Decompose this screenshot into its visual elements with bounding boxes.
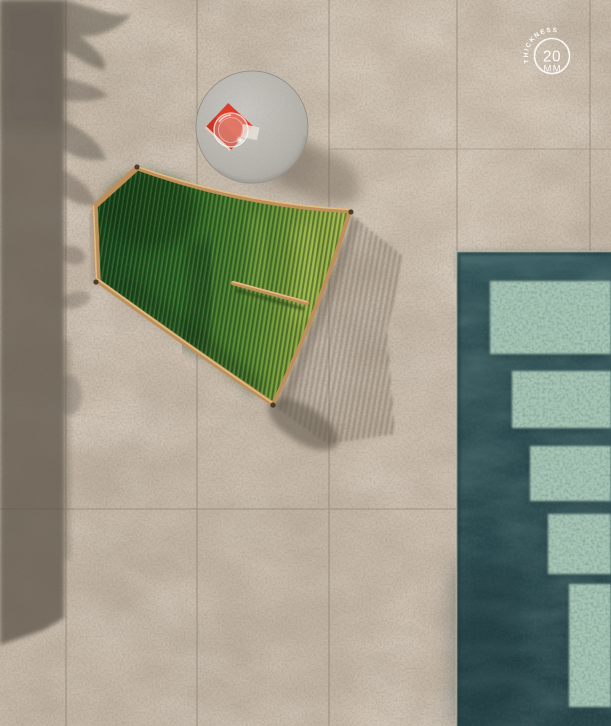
- photo-grain: [0, 0, 611, 726]
- photo-stage: 20 MM THICKNESS: [0, 0, 611, 726]
- photo-canvas: 20 MM THICKNESS: [0, 0, 611, 726]
